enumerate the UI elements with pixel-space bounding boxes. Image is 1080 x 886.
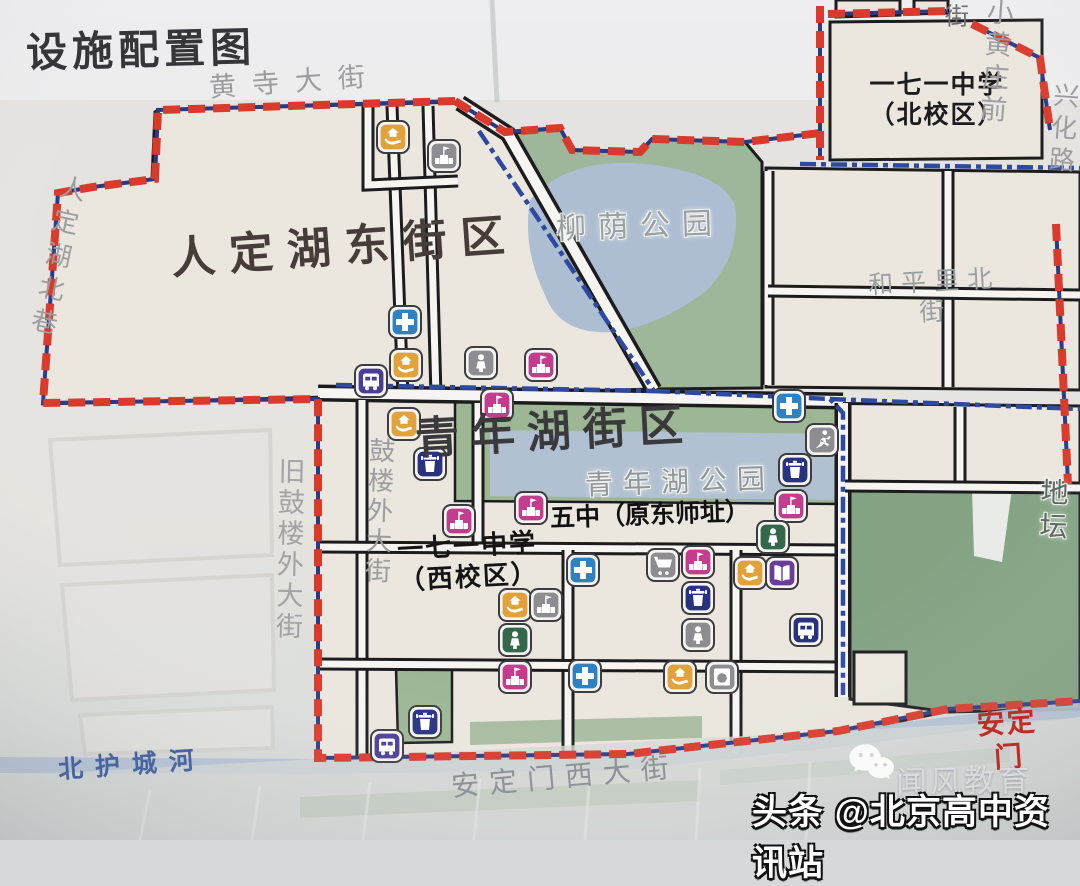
map-photo: 人定湖东街区青年湖街区一七一中学 （北校区）一七一中学 （西校区）五中（原东师址… (0, 0, 1080, 840)
wechat-icon (848, 740, 894, 780)
map-svg (0, 0, 1080, 840)
map-title: 设施配置图 (25, 13, 256, 79)
toutiao-credit: 头条 @北京高中资讯站 (752, 784, 1080, 886)
photo-vignette (0, 0, 1080, 840)
